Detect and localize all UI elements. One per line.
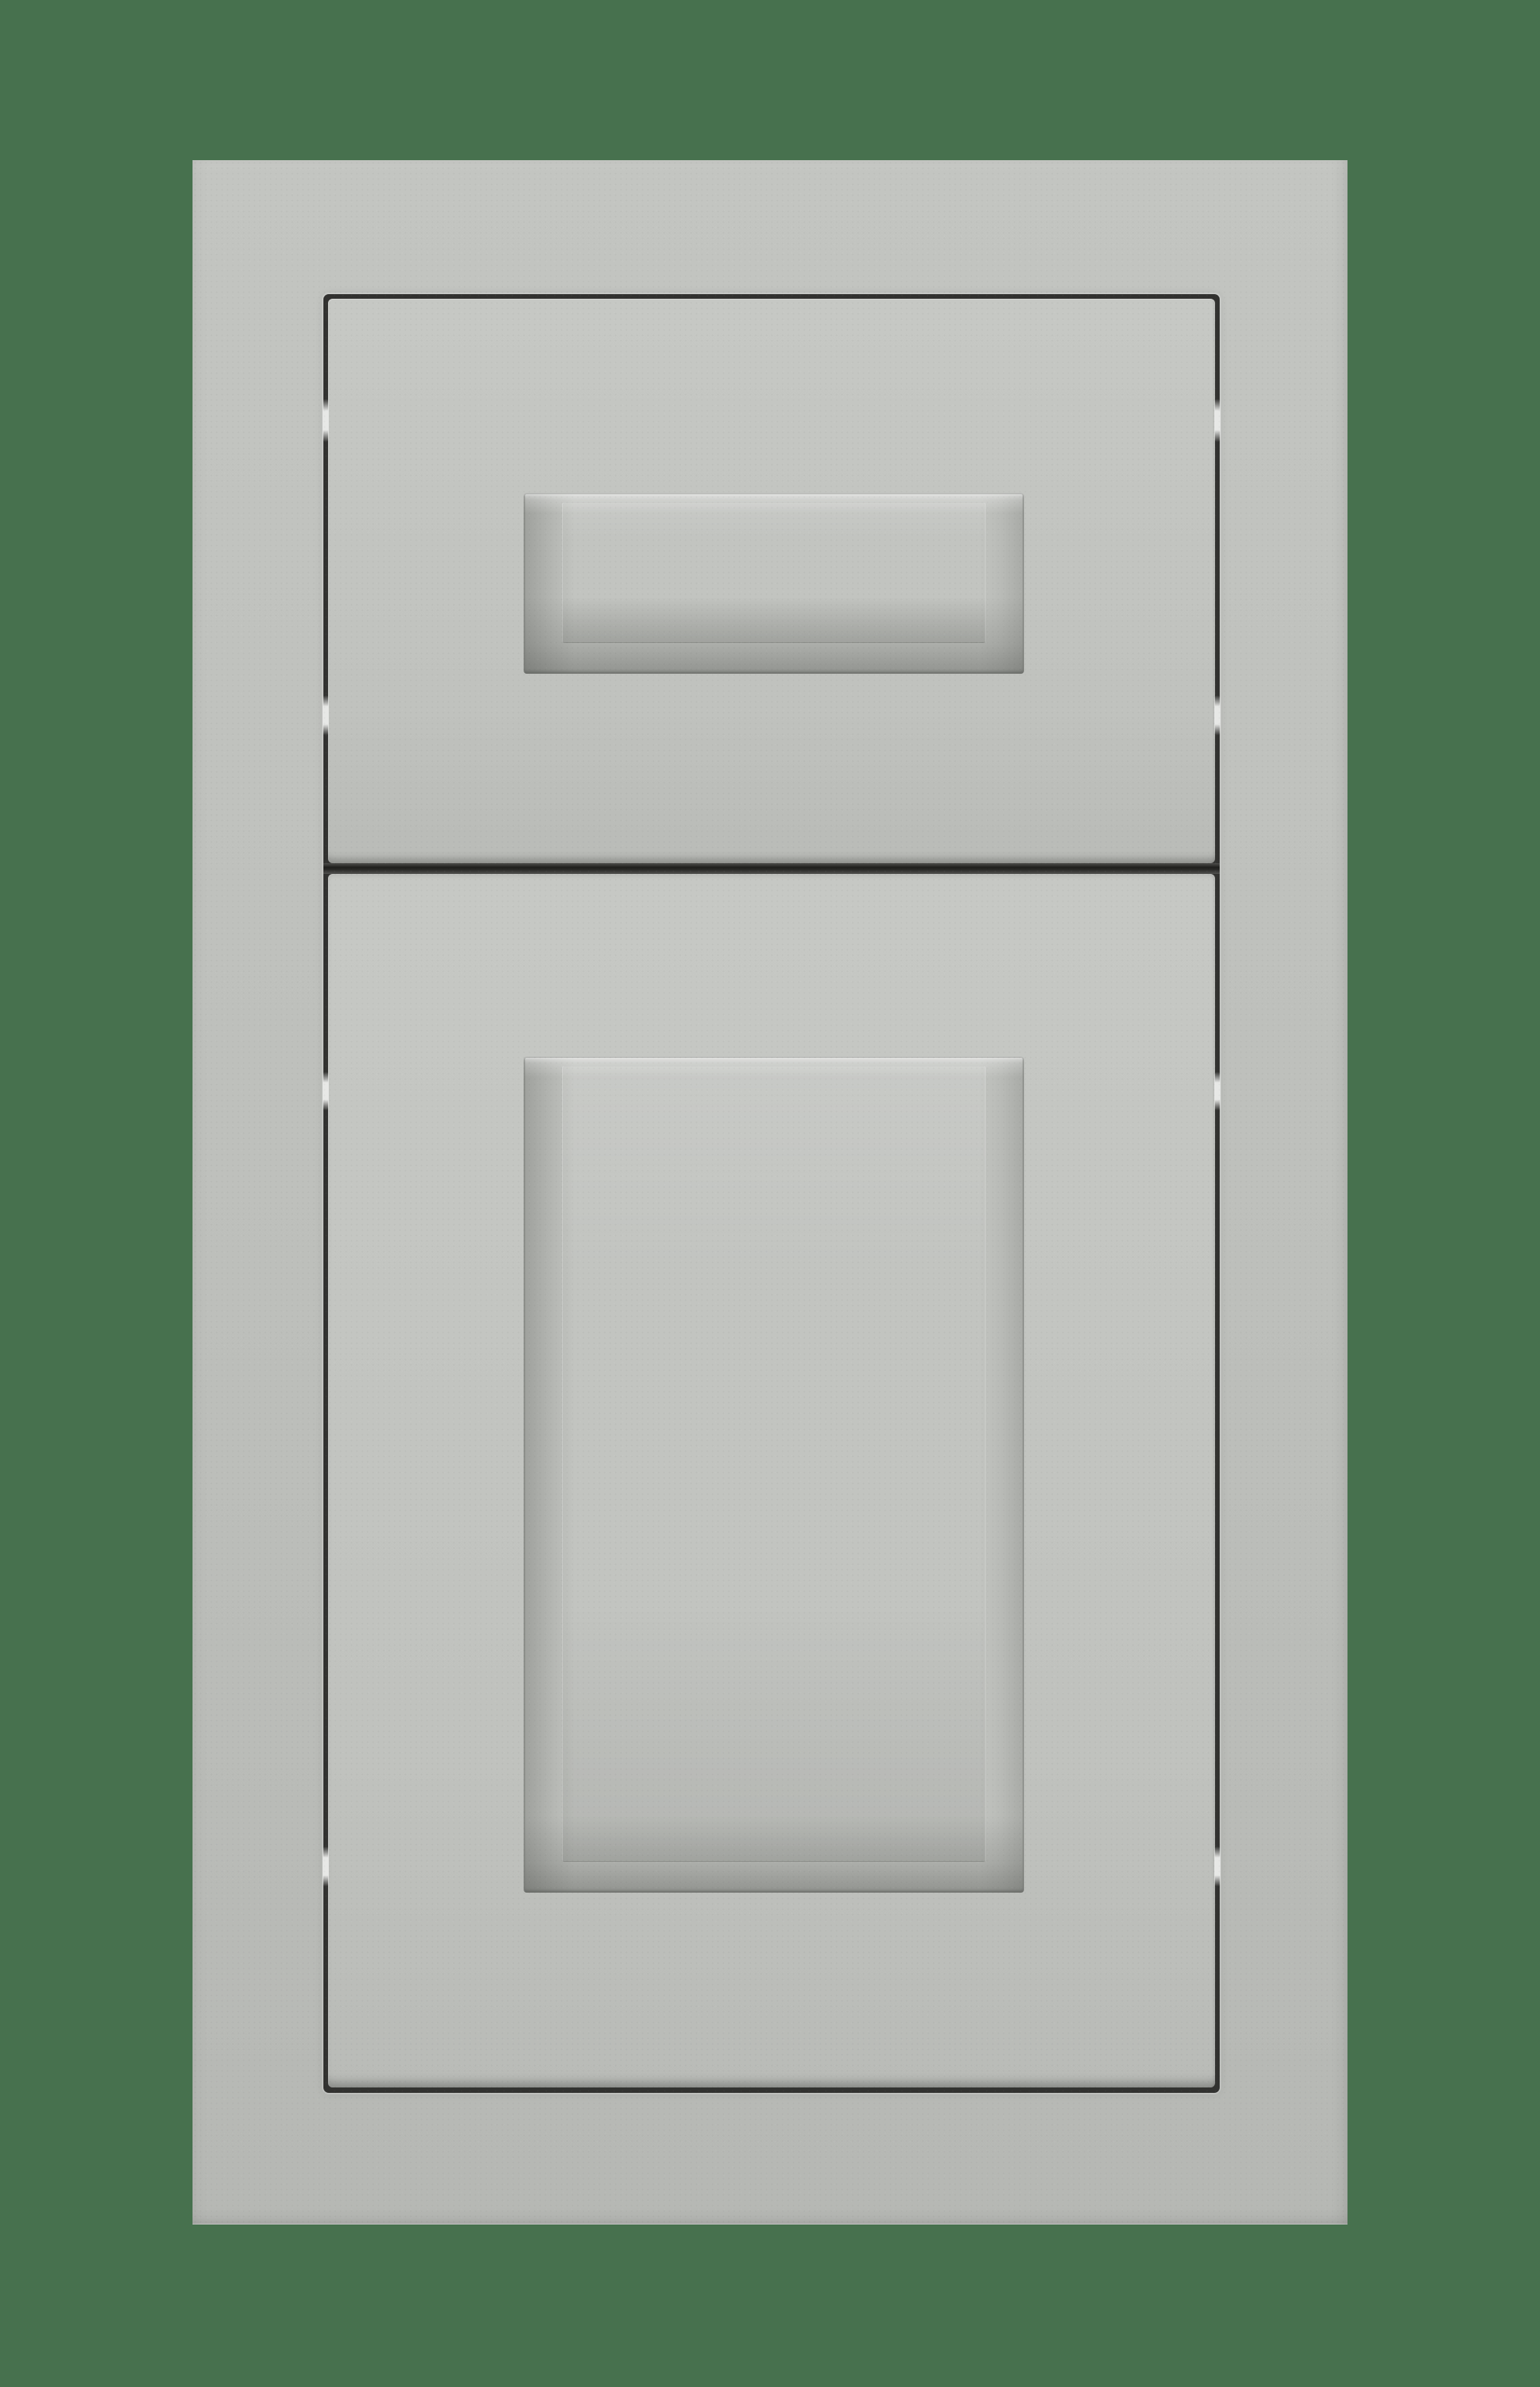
hinge-gap-highlight: [323, 1072, 329, 1110]
door-panel-floor: [562, 1066, 986, 1862]
drawer-front: [328, 299, 1215, 863]
hinge-gap-highlight: [1214, 399, 1220, 442]
cabinet-face-frame: [192, 160, 1347, 2225]
door-recessed-panel: [524, 1056, 1024, 1893]
hinge-gap-highlight: [323, 1846, 329, 1886]
frame-opening-reveal-gap: [323, 294, 1220, 2093]
hinge-gap-highlight: [323, 695, 329, 735]
product-photo-background: [0, 0, 1540, 2387]
drawer-recessed-panel: [524, 493, 1024, 674]
hinge-gap-highlight: [323, 399, 329, 442]
hinge-gap-highlight: [1214, 1072, 1220, 1110]
drawer-door-divider-gap: [323, 863, 1220, 874]
door-front: [328, 874, 1215, 2087]
drawer-panel-floor: [562, 502, 986, 643]
hinge-gap-highlight: [1214, 1846, 1220, 1886]
hinge-gap-highlight: [1214, 695, 1220, 735]
